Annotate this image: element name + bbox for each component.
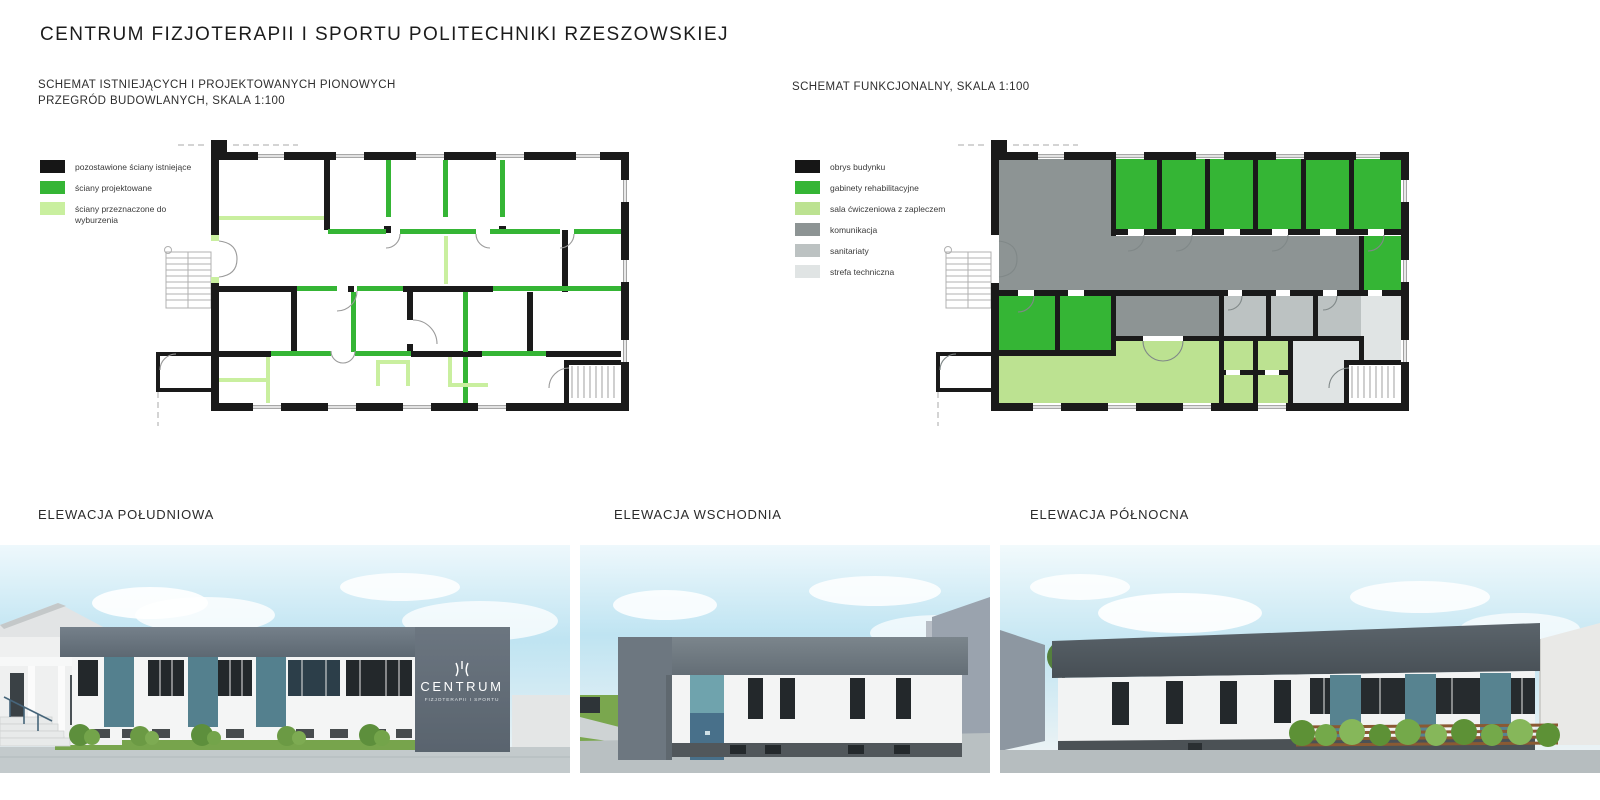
function-fills [999, 159, 1401, 403]
legend-swatch-demolition-walls [40, 202, 65, 215]
entry-vestibule [156, 352, 211, 392]
legend-item: sanitariaty [795, 244, 945, 257]
legend-swatch-circulation [795, 223, 820, 236]
stair-treads [572, 366, 614, 398]
floor-plan-functional-schematic [928, 140, 1433, 428]
legend-swatch-projected-walls [40, 181, 65, 194]
pavement [1000, 750, 1600, 773]
door-swings [160, 234, 574, 388]
plan-heading-left-line2: PRZEGRÓD BUDOWLANYCH, SKALA 1:100 [38, 94, 396, 110]
elevation-label-east: ELEWACJA WSCHODNIA [614, 507, 782, 522]
circulation-stub [1111, 290, 1219, 336]
legend-swatch-outline [795, 160, 820, 173]
stair-well [1346, 363, 1401, 403]
demolition-walls [211, 216, 488, 403]
left-background-building [1000, 630, 1045, 751]
parked-car [580, 697, 600, 713]
legend-label: obrys budynku [830, 160, 885, 173]
teal-panels [104, 657, 286, 727]
legend-item: komunikacja [795, 223, 945, 236]
door-teal-panel [690, 675, 724, 713]
legend-swatch-rehab-rooms [795, 181, 820, 194]
signage-name: CENTRUM [420, 679, 503, 694]
main-building [618, 637, 968, 760]
page-title: CENTRUM FIZJOTERAPII I SPORTU POLITECHNI… [40, 24, 729, 46]
floor-plan-walls-schematic [148, 140, 653, 428]
legend-item: strefa techniczna [795, 265, 945, 278]
plan-heading-right: SCHEMAT FUNKCJONALNY, SKALA 1:100 [792, 80, 1030, 96]
legend-label: gabinety rehabilitacyjne [830, 181, 919, 194]
legend-swatch-exercise-room [795, 202, 820, 215]
column [58, 666, 65, 736]
legend-item: sala ćwiczeniowa z zapleczem [795, 202, 945, 215]
south-elevation-render: CENTRUM FIZJOTERAPII I SPORTU [0, 545, 570, 773]
elevation-label-south: ELEWACJA POŁUDNIOWA [38, 507, 214, 522]
window-openings [253, 155, 626, 409]
legend-swatch-technical [795, 265, 820, 278]
legend-swatch-sanitary [795, 244, 820, 257]
entry-vestibule [936, 352, 991, 392]
legend-label: komunikacja [830, 223, 877, 236]
existing-interior-walls [219, 160, 621, 403]
external-stair [165, 247, 212, 309]
side-pillar [618, 637, 672, 760]
elevation-label-north: ELEWACJA PÓŁNOCNA [1030, 507, 1189, 522]
plan-heading-left: SCHEMAT ISTNIEJĄCYCH I PROJEKTOWANYCH PI… [38, 78, 396, 109]
external-stair [945, 247, 992, 309]
legend-label: sanitariaty [830, 244, 869, 257]
legend-item: gabinety rehabilitacyjne [795, 181, 945, 194]
signage-subtitle: FIZJOTERAPII I SPORTU [425, 697, 500, 703]
legend-swatch-existing-walls [40, 160, 65, 173]
legend-label: strefa techniczna [830, 265, 894, 278]
far-right-building [512, 695, 570, 747]
exercise-hall [999, 350, 1219, 403]
sanitary-rooms [1219, 290, 1361, 336]
base-strip [672, 743, 962, 757]
legend-item: obrys budynku [795, 160, 945, 173]
legend-label: ściany projektowane [75, 181, 152, 194]
legend-right: obrys budynku gabinety rehabilitacyjne s… [795, 160, 945, 278]
plan-heading-left-line1: SCHEMAT ISTNIEJĄCYCH I PROJEKTOWANYCH PI… [38, 78, 396, 94]
north-elevation-render [1000, 545, 1600, 773]
east-elevation-render [580, 545, 990, 773]
